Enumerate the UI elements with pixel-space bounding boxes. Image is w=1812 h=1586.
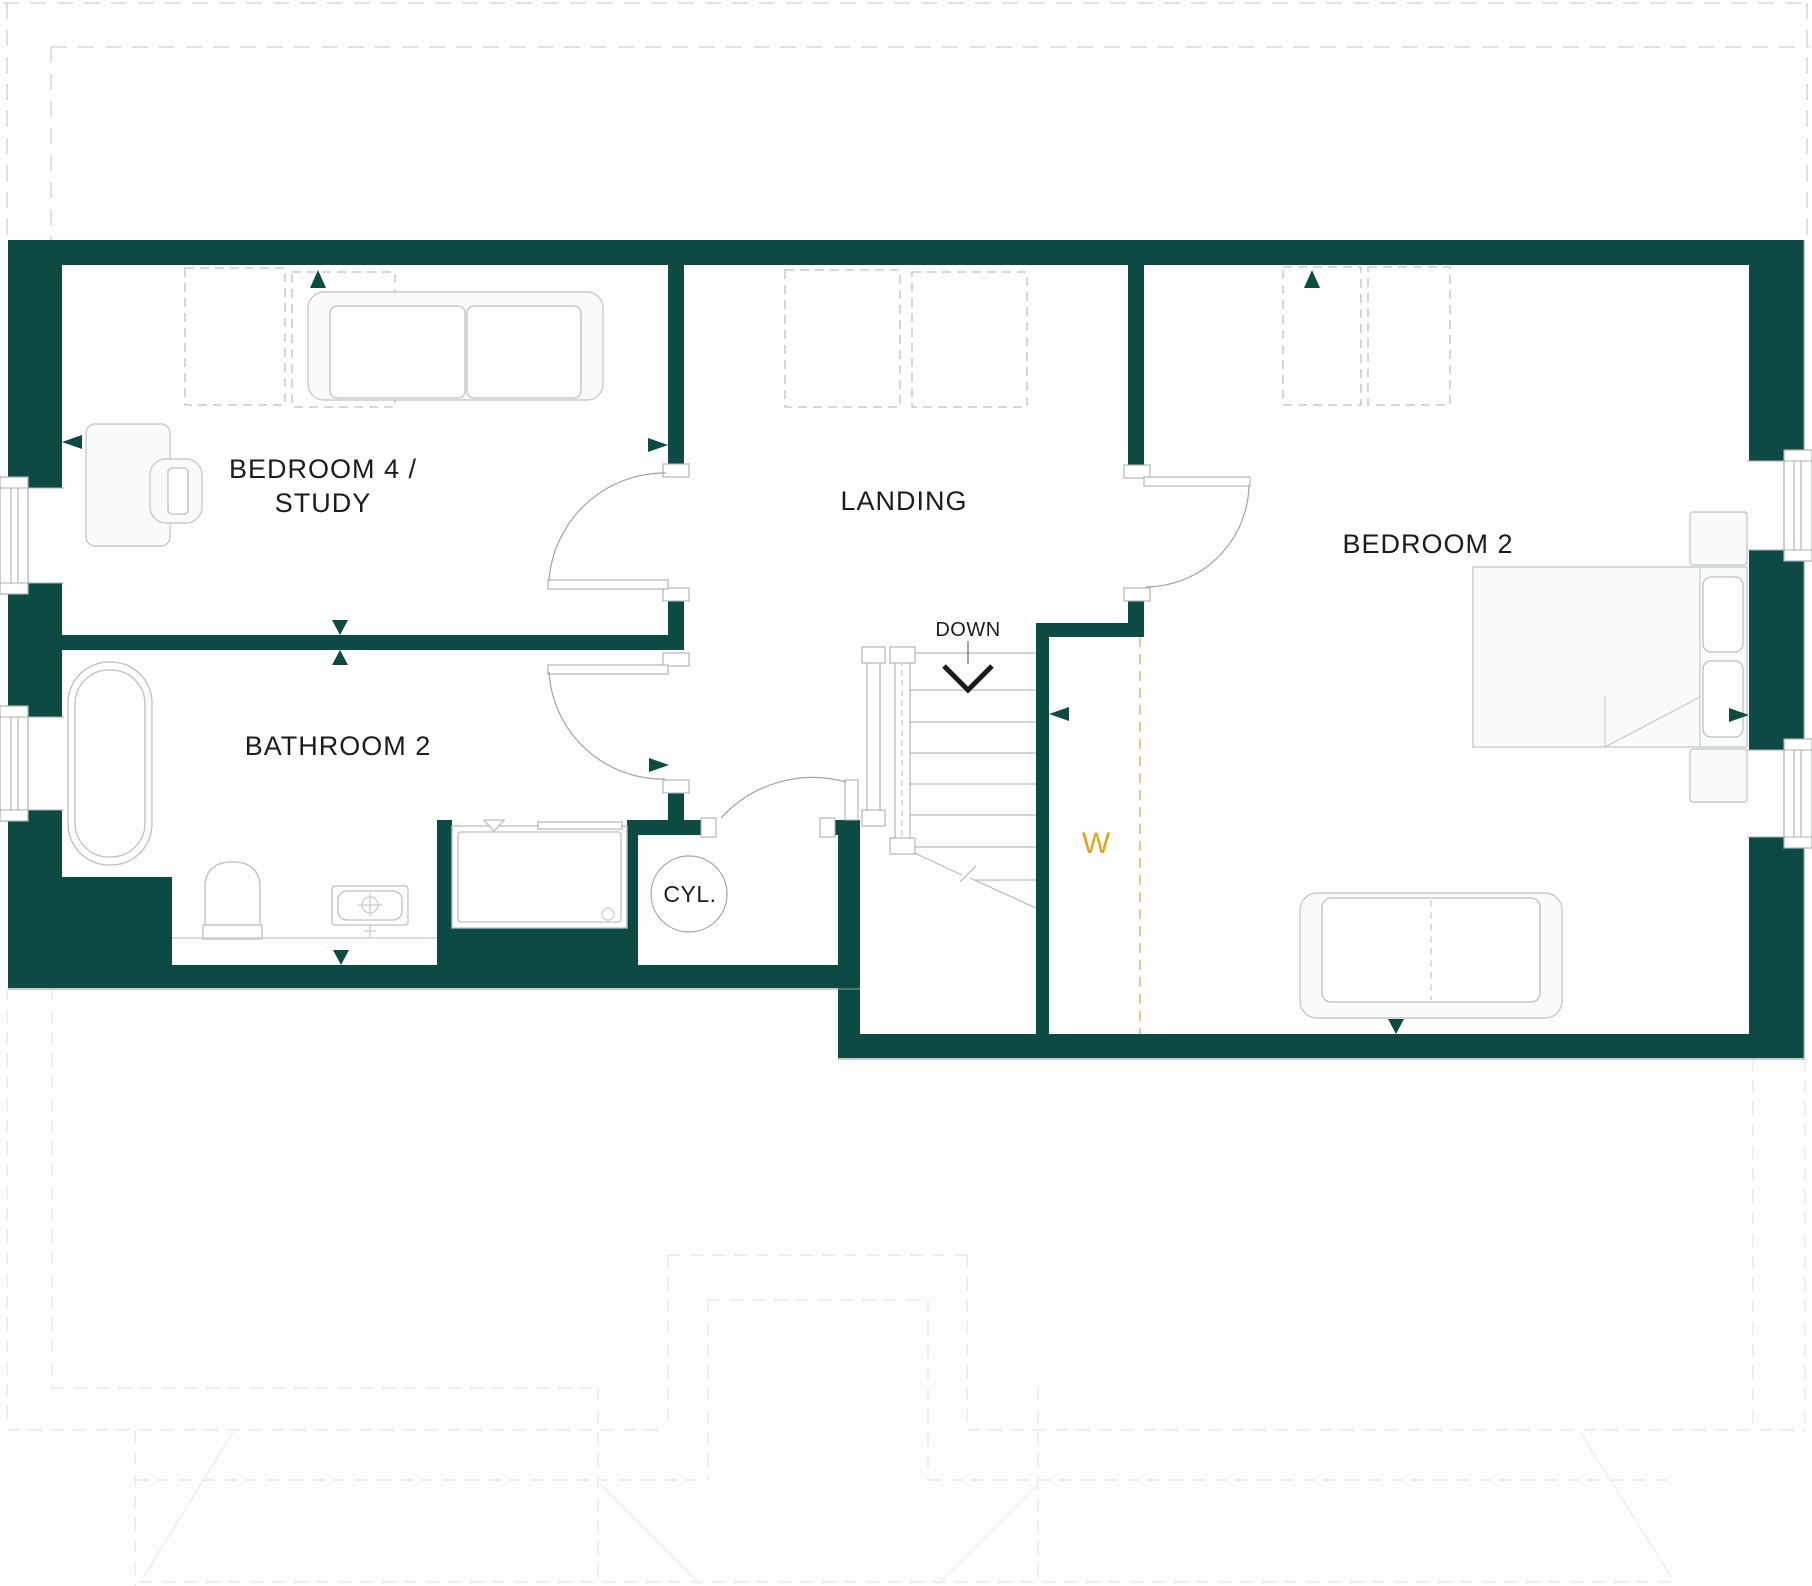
double-bed <box>1473 512 1747 802</box>
sofa <box>1300 893 1562 1018</box>
wall-right-mid <box>1749 550 1804 750</box>
down-arrow-chevron <box>944 666 992 690</box>
window-bedroom4-left <box>0 477 64 594</box>
wall-bottom-left <box>8 965 860 988</box>
wall-right-lower <box>1749 837 1804 1058</box>
label-landing: LANDING <box>840 486 967 516</box>
label-bedroom2: BEDROOM 2 <box>1342 529 1513 559</box>
bedroom2-furniture <box>1140 267 1747 1034</box>
wall-under-shower <box>452 927 627 965</box>
toilet <box>203 862 262 939</box>
door-bedroom2 <box>1124 465 1250 601</box>
label-down: DOWN <box>935 619 1000 641</box>
wall-cupboard-left <box>627 820 638 965</box>
wardrobe-dashed-box <box>1368 267 1450 405</box>
basin <box>332 886 408 937</box>
wall-stair-right <box>1036 623 1049 1034</box>
wardrobe-dashed-box <box>185 268 285 405</box>
label-cylinder: CYL. <box>663 881 716 907</box>
handrail <box>862 647 915 854</box>
sofa-bed <box>308 292 603 400</box>
wall-bathroom-top <box>62 635 684 650</box>
wardrobe-dashed-box <box>1283 267 1361 405</box>
wall-cupboard-top-left <box>627 820 702 835</box>
window-bathroom-left <box>0 706 64 821</box>
label-wardrobe: W <box>1082 827 1111 860</box>
label-bedroom4-line1: BEDROOM 4 / <box>229 454 417 484</box>
label-bathroom2: BATHROOM 2 <box>245 731 432 761</box>
shower <box>452 820 627 928</box>
wall-left-upper <box>8 240 62 488</box>
door-bedroom4 <box>548 464 689 601</box>
label-bedroom4-line2: STUDY <box>275 488 372 518</box>
storage-dashed-box <box>912 272 1027 407</box>
desk-chair <box>150 459 202 523</box>
wall-cupboard-right <box>838 820 860 965</box>
wall-shower-stub <box>437 820 452 965</box>
wall-left-mid <box>8 583 62 717</box>
landing-furniture <box>785 270 1027 407</box>
lower-outline-dashes <box>7 988 1805 1586</box>
wall-bottom-right <box>838 1034 1804 1058</box>
door-bathroom <box>548 653 689 793</box>
upper-outline-dashes <box>3 3 1809 240</box>
wall-bed4-landing-upper <box>668 265 684 465</box>
door-cupboard <box>701 777 858 837</box>
floor-plan: BEDROOM 4 / STUDY LANDING BEDROOM 2 BATH… <box>0 0 1812 1586</box>
bathtub <box>68 662 152 865</box>
wall-right-upper <box>1749 240 1804 461</box>
wall-bed2-left-upper <box>1128 265 1144 465</box>
storage-dashed-box <box>785 270 900 407</box>
window-bedroom2-right-upper <box>1747 450 1812 561</box>
window-bedroom2-right-lower <box>1747 739 1812 848</box>
wall-top <box>8 240 1804 265</box>
stairs <box>862 641 1036 908</box>
wall-bed2-jog <box>1036 623 1144 637</box>
wall-left-lower <box>8 810 62 988</box>
